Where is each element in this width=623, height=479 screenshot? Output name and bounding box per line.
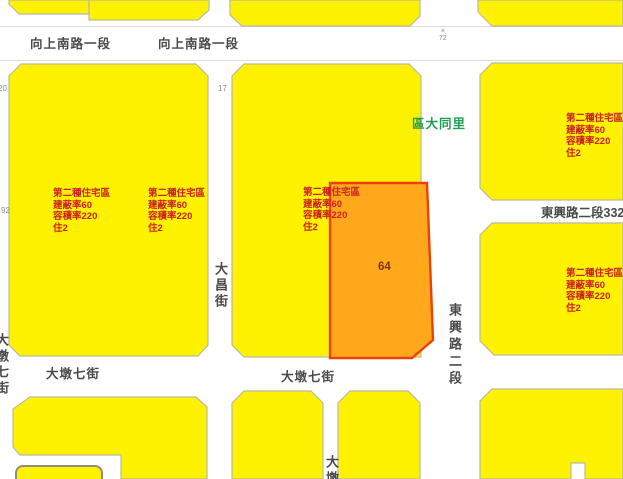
zone-block-east-south[interactable]: [480, 389, 623, 479]
zone-type-text: 第二種住宅區: [566, 113, 623, 125]
zone-code-text: 住2: [148, 223, 205, 235]
marker-17: 17: [218, 84, 227, 93]
floor-area-ratio-text: 容積率220: [566, 291, 623, 303]
zone-code-text: 住2: [566, 148, 623, 160]
zone-type-text: 第二種住宅區: [53, 188, 110, 200]
coverage-ratio-text: 建蔽率60: [303, 199, 360, 211]
street-label-left-edge-clipped: 大墩七街: [0, 333, 11, 397]
zone-type-text: 第二種住宅區: [566, 268, 623, 280]
zone-text-west-1: 第二種住宅區 建蔽率60 容積率220 住2: [53, 188, 110, 234]
street-label-dongxing-lane332: 東興路二段332巷: [541, 202, 623, 221]
zone-block-south-a[interactable]: [232, 391, 323, 479]
zone-block-top-a[interactable]: [9, 0, 89, 14]
zoning-map: 向上南路一段 向上南路一段 大昌街 大墩七街 大墩七街 大墩 大墩七街 東興路二…: [0, 0, 623, 479]
zone-block-south-b[interactable]: [338, 391, 420, 479]
street-label-dadun7-mid: 大墩七街: [281, 366, 335, 385]
floor-area-ratio-text: 容積率220: [53, 211, 110, 223]
coverage-ratio-text: 建蔽率60: [53, 200, 110, 212]
zone-code-text: 住2: [303, 222, 360, 234]
district-label: 區大同里: [412, 113, 466, 132]
zone-text-west-2: 第二種住宅區 建蔽率60 容積率220 住2: [148, 188, 205, 234]
coverage-ratio-text: 建蔽率60: [566, 125, 623, 137]
street-label-dadun7-left: 大墩七街: [46, 363, 100, 382]
street-label-dongxing-sec2: 東興路二段: [445, 303, 464, 388]
survey-tick-icon: ×: [439, 28, 447, 35]
marker-20: 20: [0, 84, 7, 93]
coverage-ratio-text: 建蔽率60: [566, 280, 623, 292]
marker-72: × 72: [439, 28, 447, 42]
zone-type-text: 第二種住宅區: [303, 187, 360, 199]
floor-area-ratio-text: 容積率220: [303, 210, 360, 222]
zone-block-top-d[interactable]: [478, 0, 623, 26]
floor-area-ratio-text: 容積率220: [148, 211, 205, 223]
street-label-xiangshang-2: 向上南路一段: [158, 33, 239, 52]
floor-area-ratio-text: 容積率220: [566, 136, 623, 148]
coverage-ratio-text: 建蔽率60: [148, 200, 205, 212]
zone-text-east-north: 第二種住宅區 建蔽率60 容積率220 住2: [566, 113, 623, 159]
survey-number: 72: [439, 35, 447, 42]
zone-text-east-mid: 第二種住宅區 建蔽率60 容積率220 住2: [566, 268, 623, 314]
marker-92: 92: [1, 206, 10, 215]
zone-type-text: 第二種住宅區: [148, 188, 205, 200]
street-label-dadun-bottom-clipped: 大墩: [322, 455, 341, 479]
zone-text-central: 第二種住宅區 建蔽率60 容積率220 住2: [303, 187, 360, 233]
street-label-xiangshang-1: 向上南路一段: [30, 33, 111, 52]
zone-code-text: 住2: [566, 303, 623, 315]
parcel-number: 64: [378, 261, 391, 273]
map-canvas: [0, 0, 623, 479]
street-label-dachang: 大昌街: [211, 262, 230, 310]
small-outlined-block[interactable]: [16, 466, 102, 479]
zone-block-top-c[interactable]: [230, 0, 420, 26]
zone-block-top-b[interactable]: [89, 0, 209, 20]
zone-code-text: 住2: [53, 223, 110, 235]
